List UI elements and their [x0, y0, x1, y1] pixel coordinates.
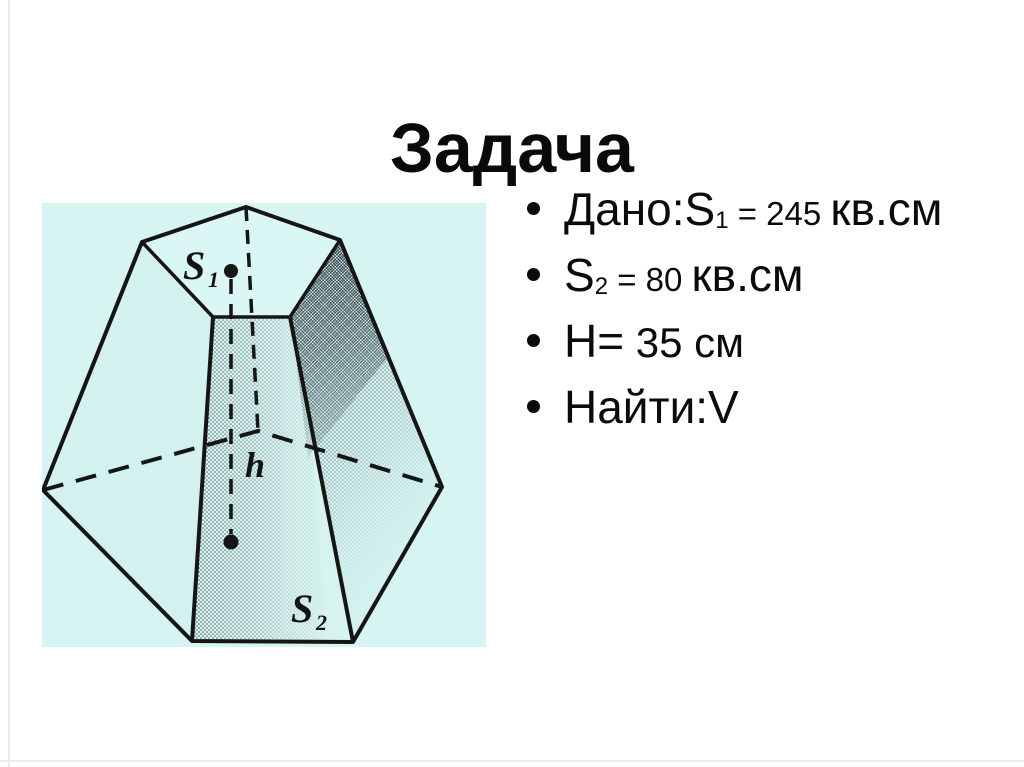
bullet-unit: кв.см	[830, 183, 942, 235]
label-s1: S	[183, 243, 205, 288]
bullet-text: Найти:V	[564, 381, 739, 433]
slide-bottom-edge	[0, 760, 1024, 762]
bullet-unit: кв.см	[692, 249, 804, 301]
bullet-value: = 245	[729, 195, 831, 232]
bullet-item-s2: S2 = 80 кв.см	[527, 242, 942, 308]
frustum-figure: S 1 h S 2	[42, 203, 486, 647]
bullet-item-find: Найти:V	[527, 374, 942, 440]
bullet-text: S	[564, 249, 595, 301]
bullet-item-given-s1: Дано:S1 = 245 кв.см	[527, 176, 942, 242]
label-s2: S	[291, 586, 313, 631]
subscript: 1	[715, 207, 728, 234]
frustum-svg: S 1 h S 2	[42, 203, 486, 647]
bullet-value: = 80	[608, 261, 691, 298]
bullet-marker-icon	[527, 400, 540, 413]
bullet-marker-icon	[527, 202, 540, 215]
bottom-center-dot	[224, 535, 239, 550]
label-h: h	[245, 445, 265, 485]
bullet-text: Дано:S	[564, 183, 715, 235]
bullet-marker-icon	[527, 334, 540, 347]
subscript: 2	[595, 273, 608, 300]
label-s2-sub: 2	[315, 610, 327, 635]
given-list: Дано:S1 = 245 кв.см S2 = 80 кв.см H= 35 …	[527, 176, 942, 440]
bullet-value: 35 см	[624, 319, 744, 366]
label-s1-sub: 1	[208, 267, 219, 292]
bullet-marker-icon	[527, 268, 540, 281]
top-center-dot	[224, 264, 238, 278]
bullet-text: H=	[564, 315, 624, 367]
bullet-item-height: H= 35 см	[527, 308, 942, 374]
